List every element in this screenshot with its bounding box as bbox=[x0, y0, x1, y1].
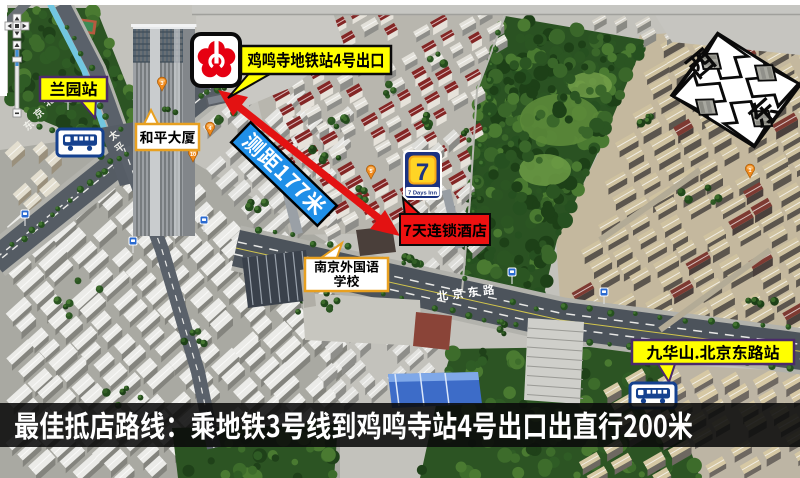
svg-text:7 Days Inn: 7 Days Inn bbox=[408, 191, 437, 197]
svg-text:5: 5 bbox=[369, 169, 372, 175]
svg-text:1: 1 bbox=[748, 168, 751, 174]
svg-text:10: 10 bbox=[190, 152, 196, 158]
svg-text:7: 7 bbox=[416, 159, 429, 186]
svg-text:3: 3 bbox=[160, 81, 163, 87]
